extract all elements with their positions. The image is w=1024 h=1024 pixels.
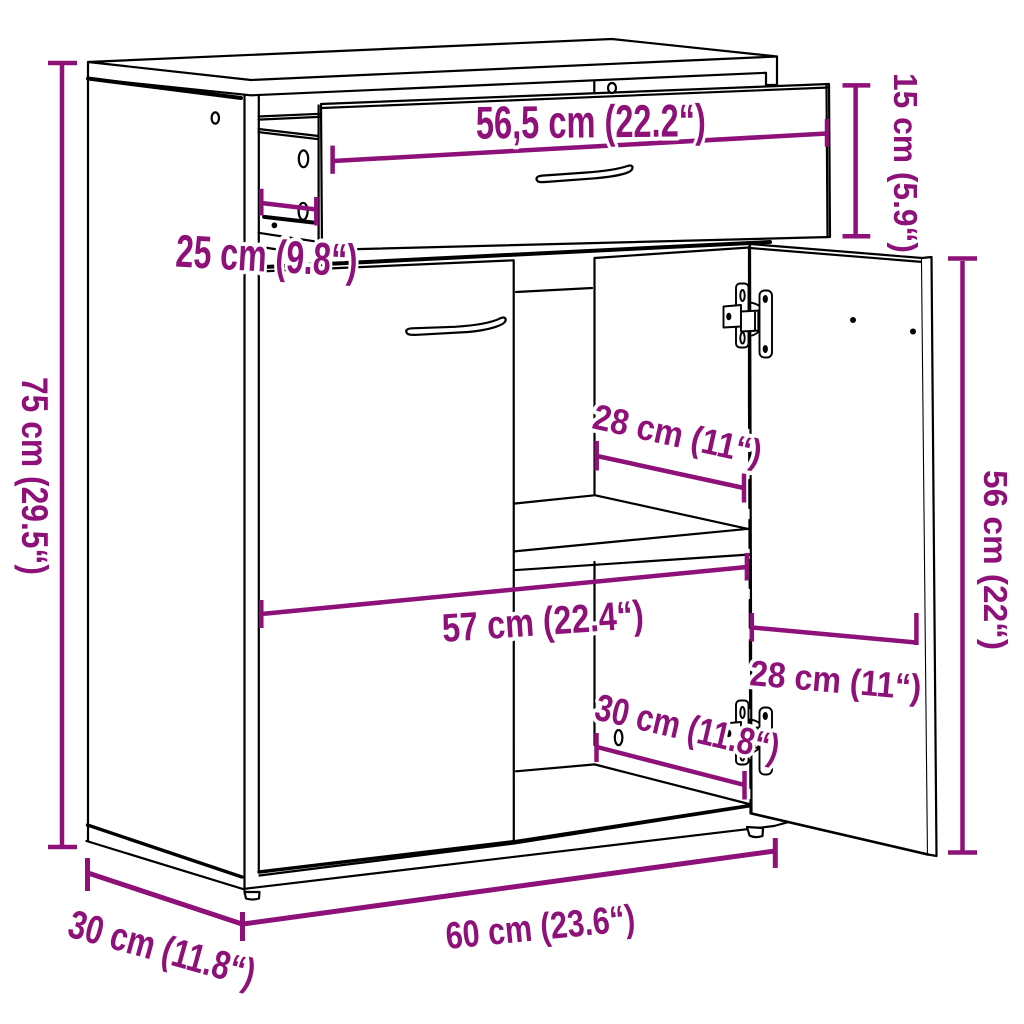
svg-text:25 cm (9.8“): 25 cm (9.8“)	[174, 225, 359, 287]
svg-text:75 cm (29.5“): 75 cm (29.5“)	[14, 377, 55, 575]
svg-text:56,5 cm (22.2“): 56,5 cm (22.2“)	[476, 94, 707, 148]
svg-text:56 cm (22“): 56 cm (22“)	[977, 470, 1014, 650]
svg-text:15 cm (5.9“): 15 cm (5.9“)	[887, 73, 924, 253]
